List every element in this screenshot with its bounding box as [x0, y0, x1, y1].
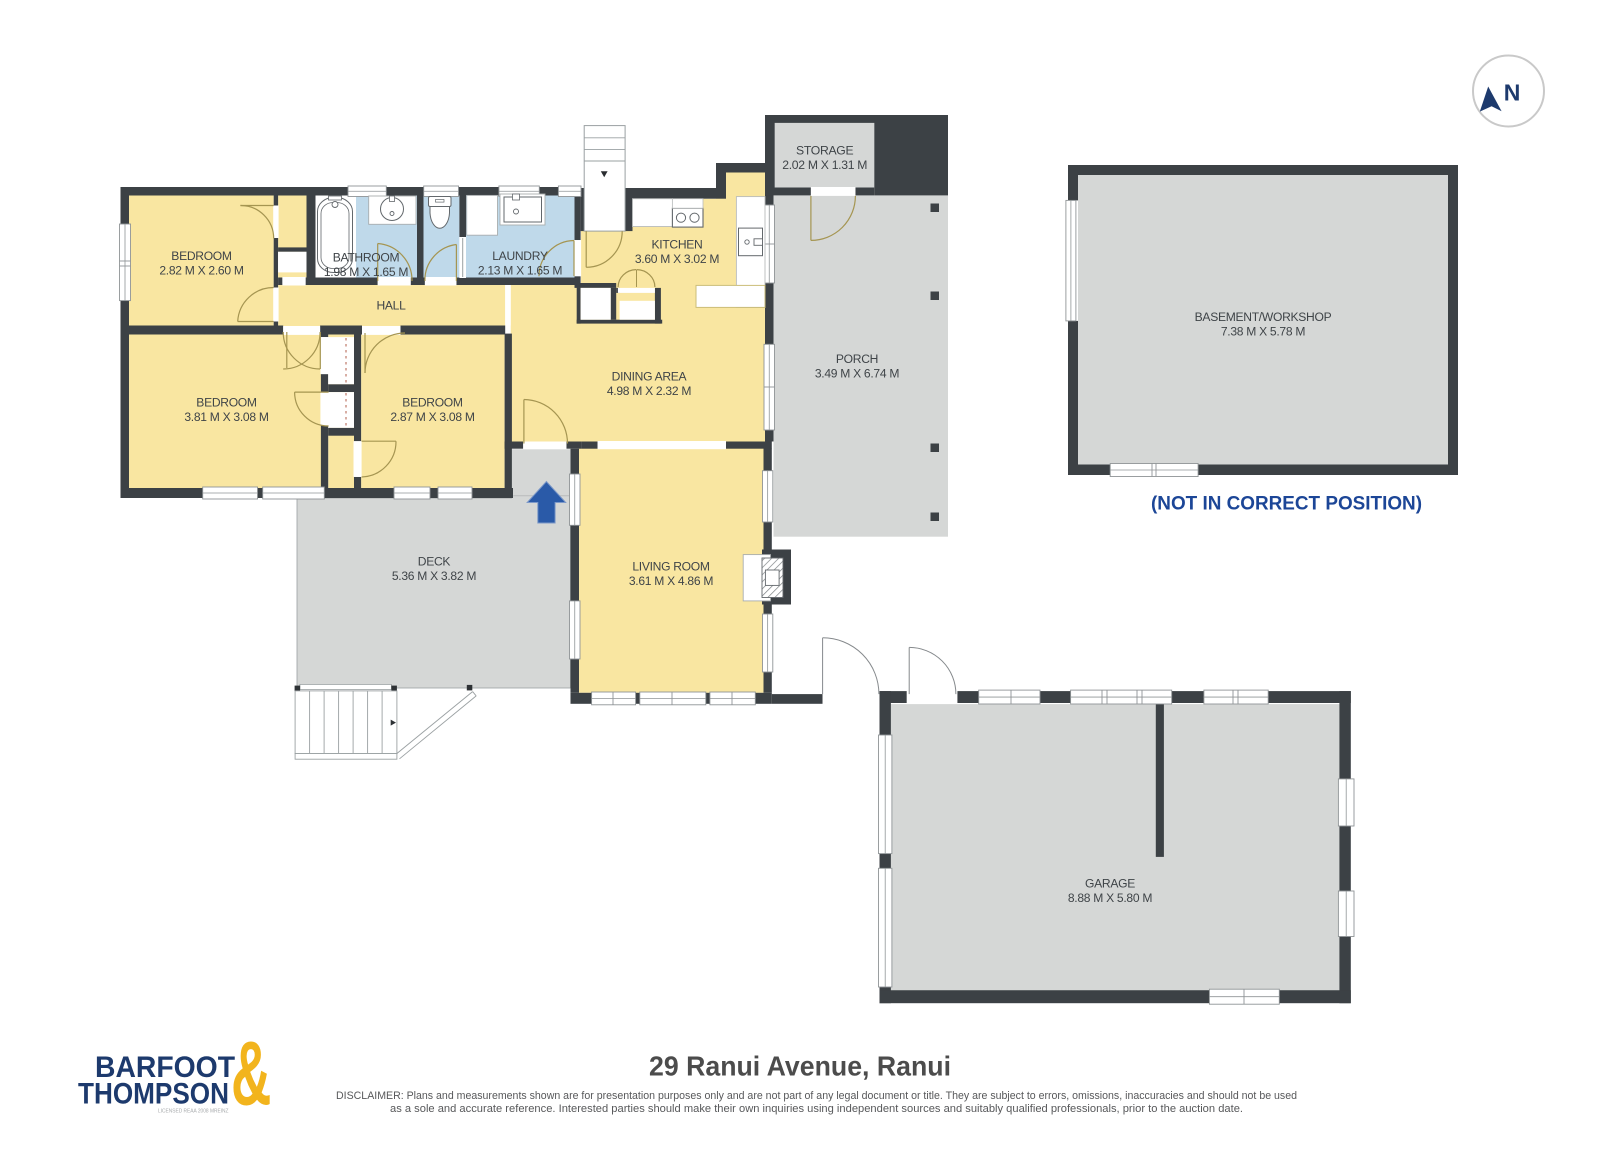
svg-text:BEDROOM: BEDROOM	[171, 249, 232, 263]
svg-text:3.60 M X 3.02 M: 3.60 M X 3.02 M	[635, 252, 719, 266]
svg-text:3.49 M X 6.74 M: 3.49 M X 6.74 M	[815, 367, 899, 381]
svg-text:BATHROOM: BATHROOM	[333, 251, 400, 265]
svg-text:LIVING ROOM: LIVING ROOM	[632, 560, 710, 574]
svg-text:BEDROOM: BEDROOM	[402, 396, 463, 410]
svg-text:2.82 M X 2.60 M: 2.82 M X 2.60 M	[159, 264, 243, 278]
svg-text:29 Ranui Avenue, Ranui: 29 Ranui Avenue, Ranui	[649, 1051, 951, 1082]
svg-text:HALL: HALL	[376, 299, 406, 313]
svg-text:DECK: DECK	[418, 555, 451, 569]
svg-text:2.02 M X 1.31 M: 2.02 M X 1.31 M	[782, 158, 867, 172]
svg-text:2.13 M X 1.65 M: 2.13 M X 1.65 M	[478, 264, 562, 278]
svg-text:5.36 M X 3.82 M: 5.36 M X 3.82 M	[392, 569, 476, 583]
svg-text:BASEMENT/WORKSHOP: BASEMENT/WORKSHOP	[1195, 310, 1332, 324]
svg-text:THOMPSON: THOMPSON	[78, 1078, 229, 1111]
svg-text:3.61 M X 4.86 M: 3.61 M X 4.86 M	[629, 574, 713, 588]
svg-text:4.98 M X 2.32 M: 4.98 M X 2.32 M	[607, 384, 691, 398]
svg-text:PORCH: PORCH	[836, 352, 878, 366]
svg-text:DISCLAIMER: Plans and measurem: DISCLAIMER: Plans and measurements shown…	[336, 1090, 1297, 1102]
svg-text:(NOT IN CORRECT POSITION): (NOT IN CORRECT POSITION)	[1151, 494, 1422, 515]
svg-text:2.87 M X 3.08 M: 2.87 M X 3.08 M	[390, 410, 474, 424]
svg-text:DINING AREA: DINING AREA	[612, 370, 688, 384]
svg-text:as a sole and accurate referen: as a sole and accurate reference. Intere…	[390, 1103, 1243, 1115]
svg-text:GARAGE: GARAGE	[1085, 877, 1135, 891]
svg-text:LAUNDRY: LAUNDRY	[492, 249, 548, 263]
svg-text:&: &	[231, 1024, 271, 1125]
svg-text:STORAGE: STORAGE	[796, 144, 853, 158]
svg-text:N: N	[1504, 80, 1521, 106]
svg-text:LICENSED REAA 2008 MREINZ: LICENSED REAA 2008 MREINZ	[158, 1109, 229, 1115]
svg-text:KITCHEN: KITCHEN	[652, 238, 703, 252]
svg-text:1.98 M X 1.65 M: 1.98 M X 1.65 M	[324, 265, 408, 279]
svg-text:BEDROOM: BEDROOM	[196, 396, 257, 410]
svg-text:7.38 M X 5.78 M: 7.38 M X 5.78 M	[1221, 325, 1305, 339]
svg-text:3.81 M X 3.08 M: 3.81 M X 3.08 M	[184, 410, 268, 424]
svg-text:8.88 M X 5.80 M: 8.88 M X 5.80 M	[1068, 891, 1152, 905]
